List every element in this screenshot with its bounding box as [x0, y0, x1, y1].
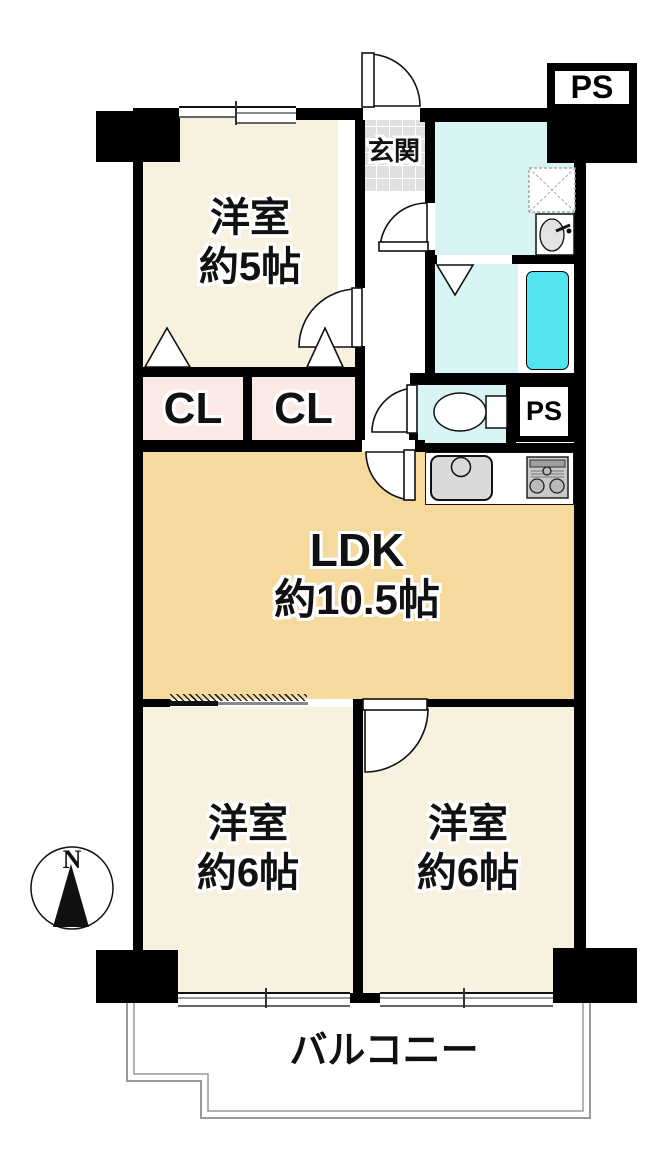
- compass: N: [31, 845, 113, 929]
- wall-kitchen-top: [409, 443, 574, 452]
- wall-top-b: [296, 108, 355, 120]
- compass-north-label: N: [63, 845, 82, 874]
- pipe-space-top-label: PS: [571, 69, 614, 106]
- closet-left-label: CL: [143, 377, 243, 440]
- sliding-door-panel-b: [218, 702, 308, 705]
- balcony-label: バルコニー: [234, 1028, 534, 1074]
- floor-plan: N PS PS 洋室 約5帖 LDK 約10.5帖 洋室 約6帖 洋室 約6帖 …: [0, 0, 662, 1163]
- pillar-bottom-left: [96, 950, 178, 1003]
- entrance-opening: [363, 108, 420, 120]
- entrance-label: 玄関: [363, 136, 425, 168]
- closet-left-text: CL: [164, 382, 223, 436]
- pillar-bottom-right: [553, 948, 637, 1003]
- pipe-space-top-box: PS: [547, 63, 637, 112]
- washroom-door-leaf: [379, 242, 428, 251]
- wall-window-stub: [350, 993, 380, 1003]
- compass-circle: [31, 847, 113, 929]
- wall-hall-left-upper: [355, 192, 365, 288]
- wall-ldk-bottom-left: [133, 699, 170, 707]
- bedroom-6-right-label: 洋室 約6帖: [365, 800, 571, 898]
- wall-hall-right-upper: [425, 117, 435, 203]
- ldk-size: 約10.5帖: [274, 576, 440, 624]
- bedroom-5-size: 約5帖: [199, 243, 301, 292]
- ldk-label: LDK 約10.5帖: [217, 524, 497, 624]
- window-bedroom-6-left: [178, 992, 350, 1007]
- bedroom-6-left-name: 洋室: [208, 800, 288, 849]
- pipe-space-block: [547, 112, 637, 163]
- compass-needle-icon: [53, 864, 89, 927]
- entrance-door-leaf: [362, 53, 374, 107]
- wall-ldk-top: [133, 440, 362, 452]
- bedroom-6-left-size: 約6帖: [197, 849, 299, 898]
- bedroom-6-right-size: 約6帖: [417, 849, 519, 898]
- kitchen-counter: [425, 452, 574, 505]
- closet-right-text: CL: [274, 382, 333, 436]
- wall-hall-right-lower: [425, 250, 435, 381]
- ldk-name: LDK: [310, 524, 405, 576]
- wall-left: [133, 162, 143, 950]
- balcony-text: バルコニー: [289, 1028, 478, 1074]
- wall-ldk-door-stub: [415, 440, 425, 452]
- wall-top-a: [133, 108, 179, 120]
- entrance-door-swing: [368, 54, 420, 106]
- ldk-opening: [362, 440, 415, 452]
- bedroom-6-left-label: 洋室 約6帖: [145, 800, 351, 898]
- bedroom-5-label: 洋室 約5帖: [145, 194, 355, 292]
- window-bedroom-5-b: [236, 112, 296, 124]
- bathroom-opening: [437, 255, 512, 264]
- washroom-door-swing: [380, 203, 427, 250]
- entrance-text: 玄関: [368, 136, 420, 168]
- bathtub: [526, 271, 569, 370]
- wall-hall-left-lower: [355, 346, 365, 452]
- washroom-opening: [425, 203, 435, 250]
- window-bedroom-6-right: [380, 992, 553, 1007]
- toilet-opening: [409, 385, 418, 433]
- sliding-door-panel-a: [170, 701, 218, 706]
- window-tick-right: [463, 988, 465, 1008]
- wall-top-c: [420, 108, 547, 122]
- wall-rooms-divider: [353, 699, 363, 1003]
- pipe-space-mid-label: PS: [526, 396, 562, 427]
- bedroom-6-right-opening: [363, 699, 427, 707]
- toilet-floor: [418, 385, 508, 443]
- window-tick-left: [265, 988, 267, 1008]
- bedroom-5-opening: [355, 288, 365, 346]
- bedroom-6-right-name: 洋室: [428, 800, 508, 849]
- wall-ldk-bottom-right: [427, 699, 574, 707]
- pipe-space-mid-box: PS: [514, 381, 574, 442]
- closet-right-label: CL: [252, 377, 355, 440]
- sliding-door-hatch: [170, 694, 307, 701]
- wall-right: [574, 122, 586, 948]
- window-tick-top: [235, 101, 237, 125]
- bedroom-5-name: 洋室: [210, 194, 290, 243]
